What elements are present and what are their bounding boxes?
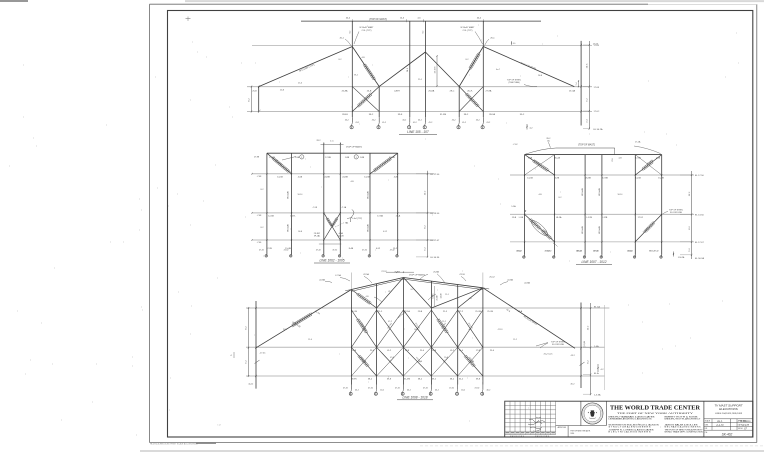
svg-text:49.12: 49.12	[544, 250, 550, 252]
svg-text:4T-32: 4T-32	[474, 387, 479, 389]
svg-text:17.0C: 17.0C	[594, 111, 600, 113]
svg-text:W14x2B: W14x2B	[582, 226, 584, 234]
svg-text:8-2: 8-2	[349, 31, 351, 34]
svg-text:COL (TYP): COL (TYP)	[362, 30, 372, 32]
svg-text:14-5B: 14-5B	[277, 176, 283, 178]
svg-text:40-2: 40-2	[435, 390, 439, 392]
svg-text:17-4B: 17-4B	[389, 157, 395, 159]
svg-text:25-6: 25-6	[308, 339, 312, 341]
svg-text:1-5B: 1-5B	[656, 158, 661, 160]
svg-text:27-8A: 27-8A	[485, 90, 491, 93]
svg-text:26-7L: 26-7L	[467, 91, 473, 93]
svg-text:17-8B: 17-8B	[602, 178, 608, 180]
svg-text:1L-B: 1L-B	[352, 350, 357, 352]
svg-text:(1-5)4B: (1-5)4B	[584, 340, 586, 347]
svg-text:34-0: 34-0	[407, 68, 409, 72]
svg-text:39-8: 39-8	[398, 114, 403, 116]
svg-text:17-B: 17-B	[476, 350, 481, 352]
svg-text:14-B: 14-B	[298, 231, 303, 233]
svg-text:4-9B: 4-9B	[555, 178, 560, 180]
svg-text:DES.: DES.	[705, 424, 709, 426]
svg-text:8-4B: 8-4B	[349, 248, 354, 250]
svg-text:17-1A: 17-1A	[635, 141, 641, 144]
svg-text:15-B: 15-B	[512, 217, 517, 219]
svg-text:L8-1A: L8-1A	[556, 216, 562, 219]
svg-text:4T-32: 4T-32	[423, 387, 428, 389]
svg-text:4.0: 4.0	[513, 43, 516, 45]
svg-text:14-B: 14-B	[543, 231, 548, 233]
svg-text:17-8B: 17-8B	[269, 157, 275, 159]
svg-text:14-5B: 14-5B	[635, 178, 641, 180]
svg-text:W14x2B: W14x2B	[288, 224, 290, 232]
svg-text:L7-5A: L7-5A	[335, 274, 341, 277]
svg-text:25-8B: 25-8B	[585, 178, 591, 180]
svg-text:17-B: 17-B	[405, 350, 410, 352]
svg-text:EL 17.67: EL 17.67	[695, 242, 704, 244]
svg-text:31-5M: 31-5M	[440, 114, 446, 116]
svg-text:0-88Y: 0-88Y	[394, 91, 400, 93]
svg-text:EL 13.50: EL 13.50	[431, 213, 440, 215]
svg-text:1-12B: 1-12B	[602, 217, 608, 219]
svg-text:1-5.3A: 1-5.3A	[594, 394, 601, 397]
svg-text:B5-2A: B5-2A	[554, 157, 560, 160]
svg-text:S T R U C T U R A L E N G I: S T R U C T U R A L E N G I N E E R S	[609, 426, 652, 429]
svg-text:(THE PLAN): (THE PLAN)	[508, 81, 519, 84]
svg-text:1L-B: 1L-B	[432, 350, 437, 352]
svg-text:22-8A: 22-8A	[319, 278, 325, 281]
svg-text:1-5B: 1-5B	[295, 157, 300, 159]
svg-text:WORLD TRADE DEPT, CONSTRUCTION: WORLD TRADE DEPT, CONSTRUCTION	[665, 431, 704, 434]
svg-text:4T-3A: 4T-3A	[569, 90, 575, 93]
svg-text:25-8A: 25-8A	[433, 271, 439, 274]
svg-text:EL 1A: EL 1A	[594, 306, 600, 309]
svg-text:SK-402: SK-402	[722, 432, 733, 436]
svg-text:8'-6: 8'-6	[612, 158, 614, 161]
svg-text:MINORU ROTH, ARCHITECT: MINORU ROTH, ARCHITECT	[665, 418, 702, 421]
svg-text:1-4TL: 1-4TL	[290, 215, 296, 217]
svg-text:EL 13.50: EL 13.50	[695, 215, 704, 217]
svg-text:25-4B: 25-4B	[437, 295, 439, 301]
svg-text:W14x2B: W14x2B	[288, 191, 290, 199]
svg-text:B8.12: B8.12	[649, 250, 655, 252]
svg-text:41-2: 41-2	[382, 122, 386, 124]
svg-text:14-52B: 14-52B	[337, 236, 344, 238]
svg-text:14-5B: 14-5B	[364, 176, 370, 178]
svg-text:L-12B: L-12B	[586, 217, 592, 219]
svg-text:21-7A: 21-7A	[487, 310, 493, 313]
svg-text:LINE 1008 - 1018: LINE 1008 - 1018	[403, 395, 428, 399]
svg-text:40-2: 40-2	[476, 120, 480, 122]
svg-text:25-2: 25-2	[444, 357, 448, 359]
svg-text:W14x2B: W14x2B	[368, 224, 370, 232]
svg-text:31-5M: 31-5M	[404, 379, 410, 381]
svg-text:25-12: 25-12	[489, 277, 495, 279]
svg-text:M E C H A N I C A L E N G I: M E C H A N I C A L E N G I N E E R S	[665, 426, 702, 429]
svg-text:4T-32: 4T-32	[343, 387, 348, 389]
svg-text:1-5B: 1-5B	[528, 158, 533, 160]
svg-text:14-5B: 14-5B	[527, 178, 533, 180]
svg-text:21-7A: 21-7A	[351, 310, 357, 313]
svg-text:4-5B: 4-5B	[298, 176, 303, 178]
svg-text:40-2: 40-2	[345, 120, 349, 122]
svg-text:39-F6: 39-F6	[342, 114, 348, 116]
svg-text:40-2: 40-2	[402, 120, 406, 122]
svg-text:FLOOR LINE: FLOOR LINE	[552, 344, 565, 346]
svg-text:24-B: 24-B	[538, 75, 543, 77]
svg-text:4T-32: 4T-32	[368, 387, 373, 389]
svg-text:W-2: W-2	[388, 291, 391, 293]
svg-text:40-2: 40-2	[452, 120, 456, 122]
svg-text:40-2: 40-2	[380, 390, 384, 392]
svg-text:25-8A: 25-8A	[342, 90, 348, 93]
svg-text:4T-32: 4T-32	[316, 250, 321, 252]
svg-text:4T-32: 4T-32	[332, 250, 337, 252]
svg-text:25-B: 25-B	[252, 91, 257, 93]
svg-text:17-8B: 17-8B	[635, 158, 641, 160]
svg-text:L8-12: L8-12	[627, 250, 633, 252]
svg-text:W14x2B: W14x2B	[368, 191, 370, 199]
svg-text:22-8A: 22-8A	[524, 282, 530, 285]
svg-text:LEINWEBER ARCHITECT, ARCHITECT: LEINWEBER ARCHITECT, ARCHITECTS	[609, 418, 653, 421]
svg-text:4-8B: 4-8B	[394, 176, 399, 178]
svg-text:LINE 105 - 107: LINE 105 - 107	[407, 130, 429, 134]
svg-text:3P-1AL: 3P-1AL	[314, 235, 320, 238]
svg-text:4Y.12: 4Y.12	[593, 250, 599, 252]
svg-text:As n.: As n.	[716, 420, 723, 423]
svg-text:EL 50.2A: EL 50.2A	[594, 128, 603, 131]
svg-text:W-178: W-178	[742, 425, 749, 427]
svg-text:27-12: 27-12	[381, 271, 387, 273]
svg-text:L-5B: L-5B	[519, 217, 524, 219]
svg-text:25-2: 25-2	[513, 339, 517, 341]
svg-text:41-2: 41-2	[486, 122, 490, 124]
svg-text:17-2B: 17-2B	[266, 248, 272, 250]
svg-text:COL (TYP): COL (TYP)	[463, 30, 473, 32]
svg-text:40-2: 40-2	[355, 390, 359, 392]
svg-text:22-8A: 22-8A	[507, 279, 513, 282]
svg-text:8-2: 8-2	[423, 31, 425, 34]
svg-text:D.Simons: D.Simons	[741, 421, 752, 423]
svg-text:4T-32: 4T-32	[362, 250, 367, 252]
svg-text:25-B: 25-B	[418, 311, 423, 313]
svg-text:21-7A: 21-7A	[475, 310, 481, 313]
svg-text:-17.0C: -17.0C	[259, 353, 266, 355]
svg-text:7A4: 7A4	[345, 221, 348, 224]
svg-text:AY-12: AY-12	[576, 249, 582, 252]
svg-text:ELEVATIONS: ELEVATIONS	[719, 407, 737, 411]
svg-text:15-2B: 15-2B	[658, 178, 664, 180]
svg-text:L 4x4 (TYP): L 4x4 (TYP)	[352, 218, 362, 220]
svg-text:40-2: 40-2	[461, 390, 465, 392]
svg-text:25-A: 25-A	[396, 214, 401, 217]
svg-text:40-2: 40-2	[418, 120, 422, 122]
svg-text:25-6A: 25-6A	[394, 271, 400, 274]
svg-text:-7.1A: -7.1A	[341, 206, 346, 209]
svg-text:4T-18: 4T-18	[498, 329, 503, 331]
svg-text:(TOP OF MAST): (TOP OF MAST)	[346, 146, 362, 149]
svg-text:40-2: 40-2	[407, 390, 411, 392]
svg-text:39-2A: 39-2A	[489, 113, 495, 116]
svg-text:41-2: 41-2	[413, 122, 417, 124]
svg-text:PA 4932-A REDUCED PRINT SCAL: PA 4932-A REDUCED PRINT SCALE ACCORDINGL…	[150, 443, 199, 446]
svg-text:25-1: 25-1	[445, 294, 449, 296]
svg-text:4T-18: 4T-18	[459, 274, 465, 276]
svg-text:THE PORT OF NEW YORK AUTHORITY: THE PORT OF NEW YORK AUTHORITY	[617, 412, 693, 415]
svg-text:2T-A: 2T-A	[518, 310, 523, 313]
svg-text:1-5A: 1-5A	[511, 205, 516, 208]
svg-text:17-8A: 17-8A	[377, 214, 383, 217]
svg-text:1-8B: 1-8B	[345, 157, 350, 159]
svg-text:17-52: 17-52	[638, 217, 644, 219]
svg-text:4T-5A: 4T-5A	[363, 273, 369, 276]
svg-text:4T-32: 4T-32	[449, 387, 454, 389]
svg-text:W 14x87 MAST: W 14x87 MAST	[460, 26, 475, 29]
svg-text:35-2: 35-2	[520, 114, 525, 116]
svg-text:R E V I S I O N S: R E V I S I O N S	[510, 436, 525, 438]
svg-text:L8.12: L8.12	[516, 250, 522, 252]
svg-text:25-8A: 25-8A	[428, 90, 434, 93]
svg-text:25-B: 25-B	[367, 91, 372, 93]
svg-text:-7.0C: -7.0C	[513, 144, 518, 146]
svg-text:40-2: 40-2	[372, 120, 376, 122]
svg-text:41-2: 41-2	[462, 122, 466, 124]
svg-text:29-C: 29-C	[450, 91, 455, 93]
svg-text:24-8B: 24-8B	[342, 176, 348, 178]
svg-text:4T-2: 4T-2	[390, 357, 394, 359]
svg-text:FLOOR LINE: FLOOR LINE	[670, 212, 683, 214]
svg-text:25-2 Com: 25-2 Com	[544, 354, 553, 356]
svg-text:W14x2B: W14x2B	[599, 188, 601, 196]
svg-text:1 of: 1 of	[217, 425, 221, 427]
svg-text:8-2: 8-2	[411, 289, 414, 291]
svg-text:(TOP OF MAST): (TOP OF MAST)	[578, 144, 595, 147]
svg-text:34'-0 M: 34'-0 M	[434, 66, 436, 73]
svg-text:17-8B: 17-8B	[325, 157, 331, 159]
svg-text:17.08: 17.08	[594, 87, 600, 89]
svg-text:15-4B: 15-4B	[285, 248, 291, 250]
svg-text:4T-32: 4T-32	[395, 387, 400, 389]
svg-text:W12: W12	[283, 329, 287, 331]
svg-text:41-2: 41-2	[355, 122, 359, 124]
svg-text:25-2: 25-2	[442, 321, 446, 323]
svg-text:1-50.2A: 1-50.2A	[678, 256, 685, 259]
svg-text:17.05: 17.05	[594, 45, 600, 47]
svg-text:24-8B: 24-8B	[324, 176, 330, 178]
svg-text:1'-4: 1'-4	[576, 83, 578, 86]
svg-text:EL 17.50: EL 17.50	[431, 174, 440, 176]
svg-text:1-8B: 1-8B	[360, 157, 365, 159]
svg-text:12-6B: 12-6B	[268, 215, 274, 217]
svg-text:LINES 104,1002,1005,1008: LINES 104,1002,1005,1008	[715, 412, 743, 415]
svg-text:E L E C T R I C A L E N G I: E L E C T R I C A L E N G I N E E R S	[609, 431, 652, 434]
svg-text:38-2: 38-2	[369, 114, 374, 116]
svg-text:R E V I S I O N S: R E V I S I O N S	[535, 436, 550, 438]
svg-text:25-B: 25-B	[280, 90, 285, 92]
svg-text:W14x2B: W14x2B	[599, 226, 601, 234]
svg-text:(TOP OF MAST): (TOP OF MAST)	[409, 273, 425, 276]
svg-text:EL 17.50: EL 17.50	[695, 175, 704, 177]
svg-text:4T-2: 4T-2	[388, 321, 392, 323]
svg-text:(TOP OF MAST): (TOP OF MAST)	[369, 18, 387, 21]
svg-text:1-4A: 1-4A	[594, 345, 599, 348]
svg-text:LINE 1007 - 1012: LINE 1007 - 1012	[582, 260, 607, 264]
svg-text:W14x2B: W14x2B	[582, 188, 584, 196]
svg-text:LINE 1002 - 1005: LINE 1002 - 1005	[320, 259, 345, 263]
svg-text:W 14x87 MAST: W 14x87 MAST	[359, 26, 374, 29]
svg-text:EL 17.67: EL 17.67	[431, 240, 440, 242]
svg-text:17.88: 17.88	[254, 156, 260, 158]
svg-text:14-2B: 14-2B	[441, 293, 443, 299]
svg-text:2-1-71: 2-1-71	[715, 424, 724, 427]
svg-text:38-2: 38-2	[464, 114, 469, 116]
svg-text:THE WORLD TRADE CENTER: THE WORLD TRADE CENTER	[610, 404, 701, 411]
svg-text:40-2: 40-2	[487, 390, 491, 392]
svg-text:EL A: EL A	[594, 372, 599, 375]
svg-text:4T-32: 4T-32	[259, 250, 264, 252]
svg-text:EL 50.36: EL 50.36	[431, 257, 440, 259]
svg-text:39-F6: 39-F6	[351, 379, 357, 381]
svg-text:EL 50.2A: EL 50.2A	[695, 257, 704, 260]
svg-text:SK NO.: SK NO.	[738, 428, 744, 430]
svg-text:41-2: 41-2	[429, 122, 433, 124]
svg-text:4o-12: 4o-12	[248, 383, 253, 385]
